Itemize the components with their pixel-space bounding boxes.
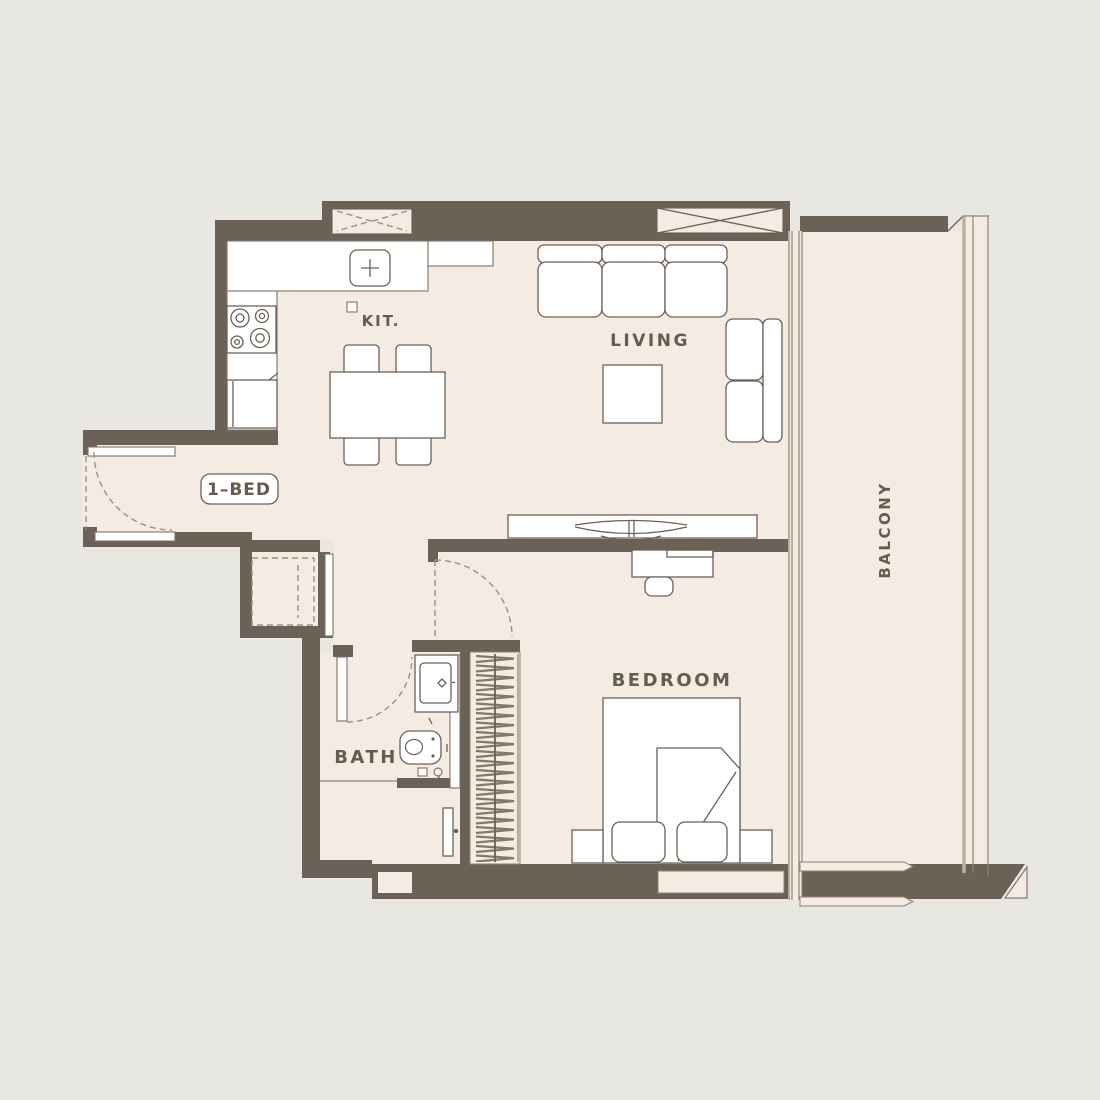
bedroom-window-slab: [658, 871, 784, 893]
pillow: [677, 822, 727, 862]
loveseat: [726, 319, 782, 442]
desk-chair: [645, 577, 673, 596]
balcony-glass-wall: [788, 231, 802, 900]
label-bedroom: BEDROOM: [612, 670, 733, 691]
entry-door-threshold: [95, 532, 175, 541]
nightstand: [740, 830, 772, 863]
label-living: LIVING: [610, 331, 690, 351]
kitchen-counter: [227, 241, 428, 291]
tv-console: [508, 515, 757, 541]
drain-icon: [418, 768, 427, 776]
shower-door: [443, 808, 453, 856]
dining-table: [330, 372, 445, 438]
shower-door-handle: [454, 829, 458, 833]
bottom-wall-notch: [378, 872, 412, 893]
kitchen-counter-extension: [428, 241, 493, 266]
fridge-icon: [227, 380, 277, 428]
floor-plan-page: KIT. LIVING BEDROOM BATH BALCONY 1–BED: [0, 0, 1100, 1100]
desk: [632, 550, 713, 577]
label-kitchen: KIT.: [362, 312, 401, 330]
balcony-parapet: [962, 215, 989, 875]
balcony-floor: [788, 231, 962, 871]
switch-icon: [347, 302, 357, 312]
label-balcony: BALCONY: [876, 481, 894, 578]
bath-door-leaf: [337, 657, 347, 721]
entry-door-leaf: [88, 447, 175, 456]
nightstand: [572, 830, 603, 863]
shaft-box-dashed: [332, 209, 412, 234]
stove-icon: [227, 306, 276, 353]
unit-badge: 1–BED: [201, 474, 278, 504]
closet-slider-panel: [325, 554, 333, 636]
sofa: [538, 245, 727, 317]
unit-badge-text: 1–BED: [207, 480, 271, 500]
wardrobe: [470, 652, 520, 864]
toilet-icon: [400, 731, 441, 764]
label-bath: BATH: [334, 747, 398, 768]
pillow: [612, 822, 665, 862]
coffee-table: [603, 365, 662, 423]
floor-plan-drawing: KIT. LIVING BEDROOM BATH BALCONY 1–BED: [0, 0, 1100, 1100]
